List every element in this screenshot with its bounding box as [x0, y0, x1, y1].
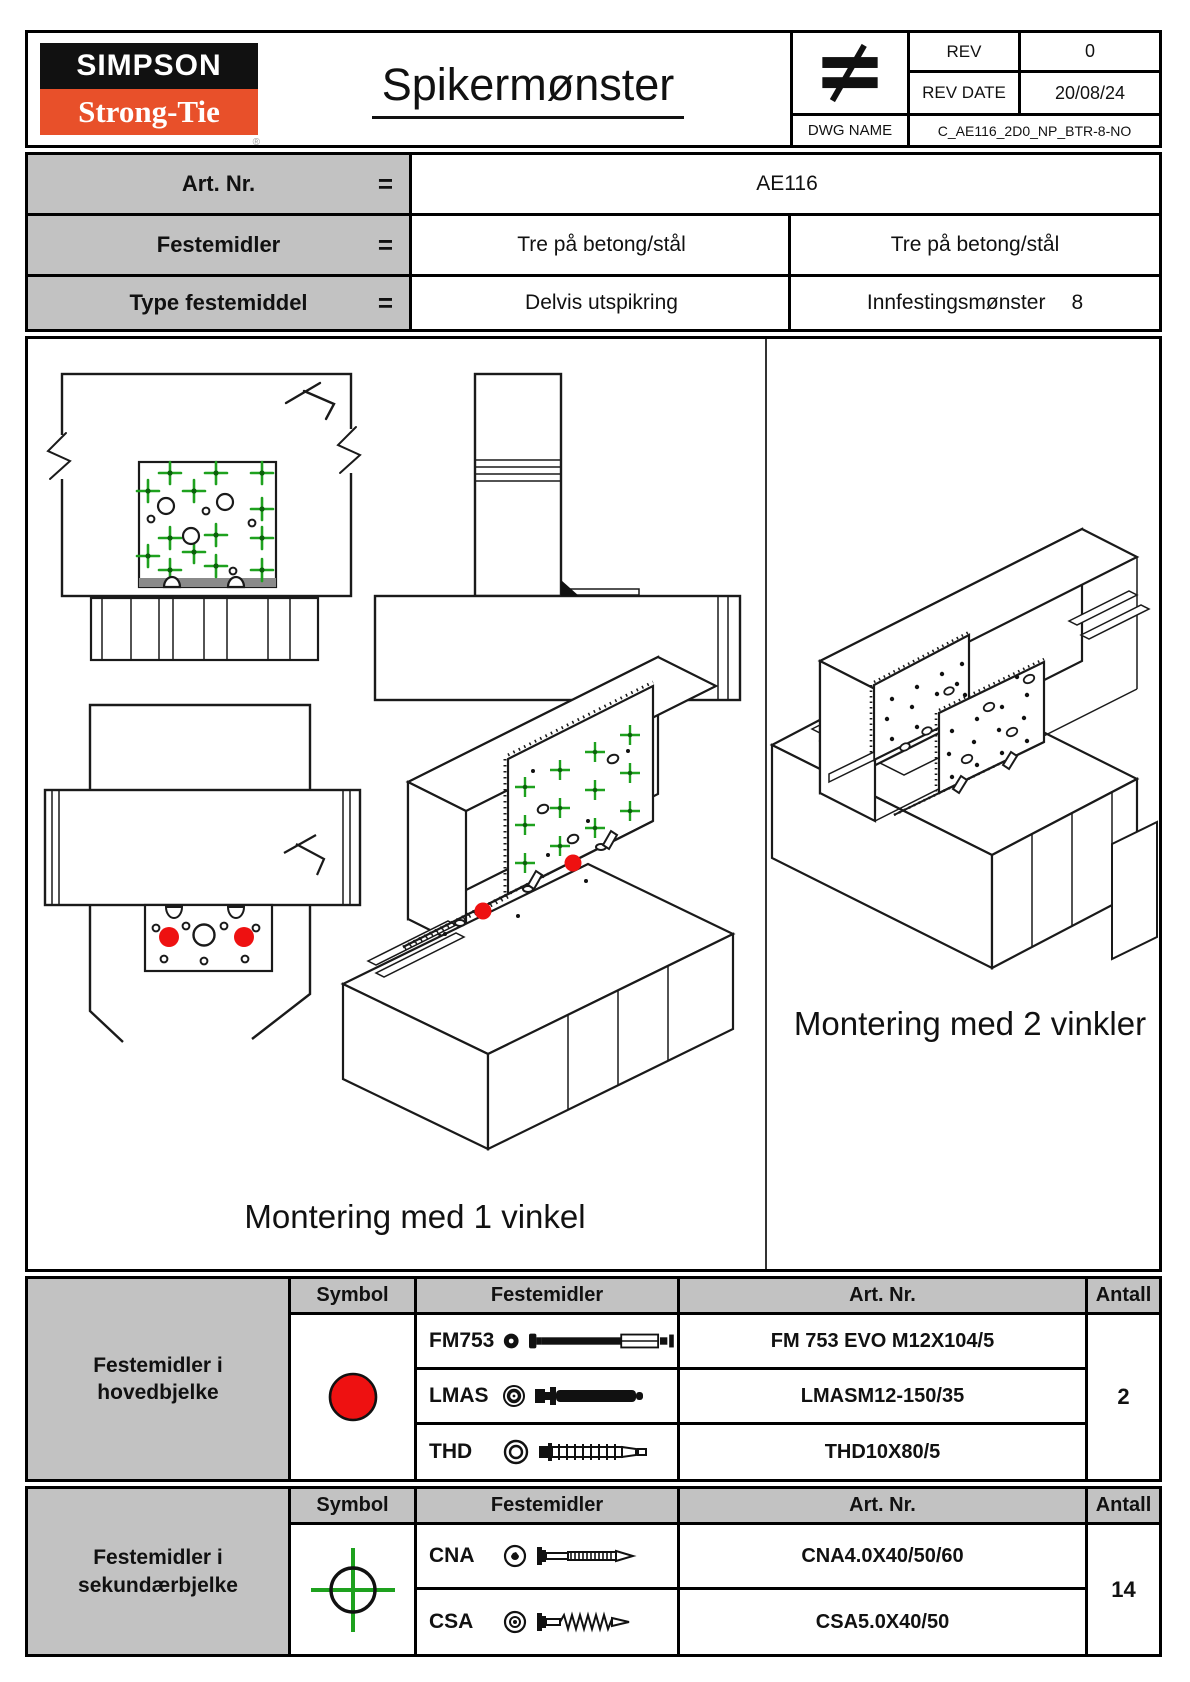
table1-title-line2: hovedbjelke [97, 1379, 218, 1406]
table1-header-antall: Antall [1085, 1279, 1159, 1315]
title-block: SIMPSON Strong-Tie ® Spikermønster REV 0… [25, 30, 1162, 148]
logo-strongtie-text: Strong-Tie [40, 89, 258, 135]
fastener-code: LMAS [429, 1384, 493, 1408]
fastener-table-secondary-beam: Festemidler i sekundærbjelke Symbol Fest… [25, 1486, 1162, 1657]
lmas-anchor-bolt-icon [535, 1383, 647, 1409]
table1-header-symbol: Symbol [288, 1279, 414, 1315]
table1-header-artnr: Art. Nr. [677, 1279, 1085, 1315]
table1-row1-artnr: FM 753 EVO M12X104/5 [677, 1315, 1085, 1370]
not-equal-icon [811, 42, 889, 104]
table2-title-line1: Festemidler i [93, 1544, 223, 1571]
red-circle-icon [325, 1369, 381, 1425]
table2-antall-value: 14 [1085, 1525, 1159, 1654]
rev-value: 0 [1018, 33, 1159, 73]
table2-row1-fastener: CNA [414, 1525, 677, 1590]
pattern-label: Innfestingsmønster [867, 291, 1046, 315]
table2-header-festemidler: Festemidler [414, 1489, 677, 1525]
info-value-festemidler-right: Tre på betong/stål [788, 216, 1159, 274]
drawing-area [25, 336, 1162, 1272]
table2-symbol-cell [288, 1525, 414, 1654]
table1-row3-artnr: THD10X80/5 [677, 1425, 1085, 1479]
table1-title-line1: Festemidler i [93, 1352, 223, 1379]
info-label-artnr-text: Art. Nr. [182, 171, 255, 197]
table1-header-festemidler: Festemidler [414, 1279, 677, 1315]
info-row-type: Type festemiddel = Delvis utspikring Inn… [28, 277, 1159, 329]
equals-sign: = [378, 288, 393, 319]
table1-symbol-cell [288, 1315, 414, 1479]
caption-two-angles: Montering med 2 vinkler [782, 1005, 1158, 1043]
table2-header-symbol: Symbol [288, 1489, 414, 1525]
table1-row2-artnr: LMASM12-150/35 [677, 1370, 1085, 1425]
simpson-strongtie-logo: SIMPSON Strong-Tie ® [40, 43, 258, 135]
table1-row3-fastener: THD [414, 1425, 677, 1479]
rev-date-label: REV DATE [907, 73, 1018, 116]
table2-row1-artnr: CNA4.0X40/50/60 [677, 1525, 1085, 1590]
cna-anchor-nail-icon [537, 1545, 649, 1567]
info-row-artnr: Art. Nr. = AE116 [28, 155, 1159, 216]
info-value-artnr: AE116 [415, 155, 1159, 213]
lmas-washer-icon [502, 1384, 526, 1408]
fastener-code: THD [429, 1440, 493, 1464]
fastener-code: CSA [429, 1610, 493, 1634]
equals-sign: = [378, 169, 393, 200]
table2-title-line2: sekundærbjelke [78, 1572, 238, 1599]
table2-header-artnr: Art. Nr. [677, 1489, 1085, 1525]
fm753-sleeve-bolt-icon [529, 1329, 677, 1353]
cna-head-icon [502, 1543, 528, 1569]
right-drawing-panel [767, 339, 1159, 1269]
left-drawing-panel [28, 339, 765, 1269]
info-label-type-text: Type festemiddel [129, 290, 307, 316]
dwg-name-value: C_AE116_2D0_NP_BTR-8-NO [907, 116, 1159, 145]
info-label-festemidler-text: Festemidler [157, 232, 281, 258]
rev-date-value: 20/08/24 [1018, 73, 1159, 116]
top-view-drawing [45, 705, 360, 1042]
thd-washer-icon [502, 1438, 530, 1466]
table2-row2-artnr: CSA5.0X40/50 [677, 1590, 1085, 1654]
table2-title: Festemidler i sekundærbjelke [28, 1489, 288, 1654]
csa-head-icon [502, 1609, 528, 1635]
sheet-title-wrap: Spikermønster [268, 39, 788, 139]
thd-concrete-screw-icon [539, 1439, 649, 1465]
revision-table: REV 0 REV DATE 20/08/24 DWG NAME C_AE116… [790, 33, 1159, 145]
info-label-type: Type festemiddel = [28, 277, 412, 329]
drawing-sheet: SIMPSON Strong-Tie ® Spikermønster REV 0… [0, 0, 1190, 1682]
not-equal-symbol-cell [790, 33, 907, 116]
info-value-type-left: Delvis utspikring [415, 277, 788, 329]
table2-row2-fastener: CSA [414, 1590, 677, 1654]
info-table: Art. Nr. = AE116 Festemidler = Tre på be… [25, 152, 1162, 332]
rev-label: REV [907, 33, 1018, 73]
green-crosshair-icon [307, 1544, 399, 1636]
info-label-artnr: Art. Nr. = [28, 155, 412, 213]
front-view-drawing [48, 374, 360, 660]
info-label-festemidler: Festemidler = [28, 216, 412, 274]
iso-view-one-angle [343, 657, 733, 1149]
iso-view-two-angles [772, 529, 1157, 968]
fastener-table-main-beam: Festemidler i hovedbjelke Symbol Festemi… [25, 1276, 1162, 1482]
table1-antall-value: 2 [1085, 1315, 1159, 1479]
fastener-code: CNA [429, 1544, 493, 1568]
fastener-code: FM753 [429, 1329, 493, 1353]
side-view-drawing [375, 374, 740, 700]
table1-row2-fastener: LMAS [414, 1370, 677, 1425]
table1-title: Festemidler i hovedbjelke [28, 1279, 288, 1479]
registered-mark: ® [253, 137, 260, 148]
table2-header-antall: Antall [1085, 1489, 1159, 1525]
caption-one-angle: Montering med 1 vinkel [205, 1198, 625, 1236]
info-row-festemidler: Festemidler = Tre på betong/stål Tre på … [28, 216, 1159, 277]
fm753-washer-icon [502, 1330, 520, 1352]
dwg-name-label: DWG NAME [790, 116, 907, 145]
pattern-number: 8 [1071, 291, 1083, 315]
logo-simpson-text: SIMPSON [40, 43, 258, 89]
csa-anchor-screw-icon [537, 1611, 649, 1633]
info-value-festemidler-left: Tre på betong/stål [415, 216, 788, 274]
info-value-pattern: Innfestingsmønster 8 [788, 277, 1159, 329]
table1-row1-fastener: FM753 [414, 1315, 677, 1370]
sheet-title: Spikermønster [372, 59, 685, 119]
equals-sign: = [378, 230, 393, 261]
